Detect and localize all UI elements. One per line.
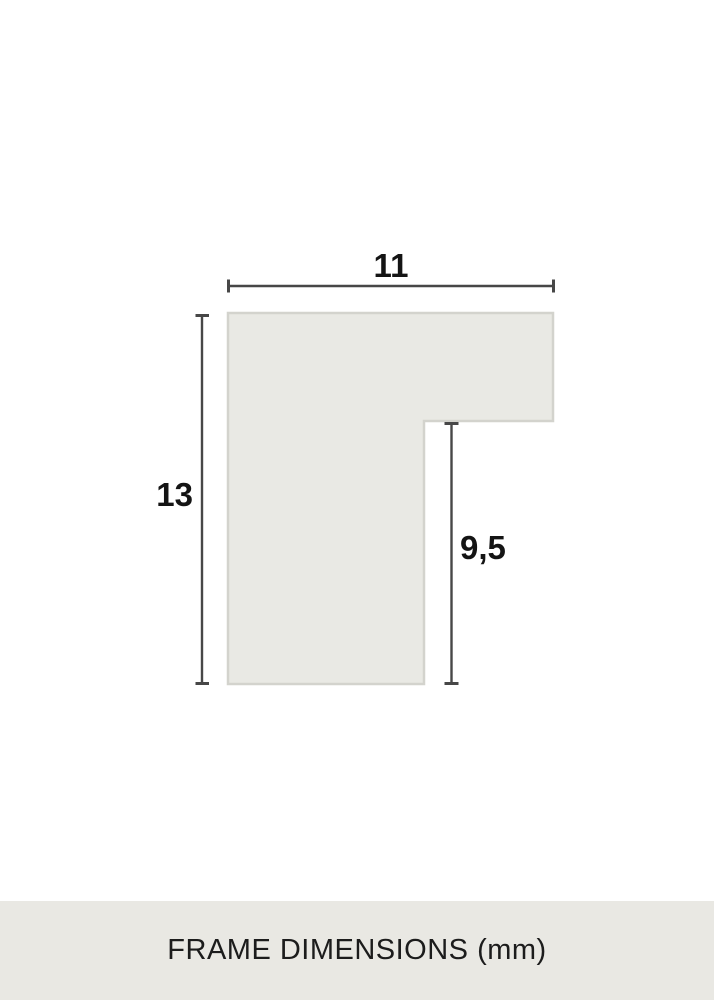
- frame-dimensions-diagram: 11 13 9,5 FRAME DIMENSIONS (mm): [0, 0, 714, 1000]
- rabbet-dimension-label: 9,5: [460, 531, 506, 564]
- height-dimension-label: 13: [118, 478, 193, 511]
- caption-text: FRAME DIMENSIONS (mm): [167, 934, 546, 967]
- caption-bar: FRAME DIMENSIONS (mm): [0, 901, 714, 1000]
- width-dimension-label: 11: [228, 249, 554, 282]
- profile-diagram-canvas: [0, 0, 714, 1000]
- height-dimension-line: [196, 315, 210, 684]
- frame-profile-shape: [228, 313, 553, 684]
- rabbet-dimension-line: [445, 423, 459, 684]
